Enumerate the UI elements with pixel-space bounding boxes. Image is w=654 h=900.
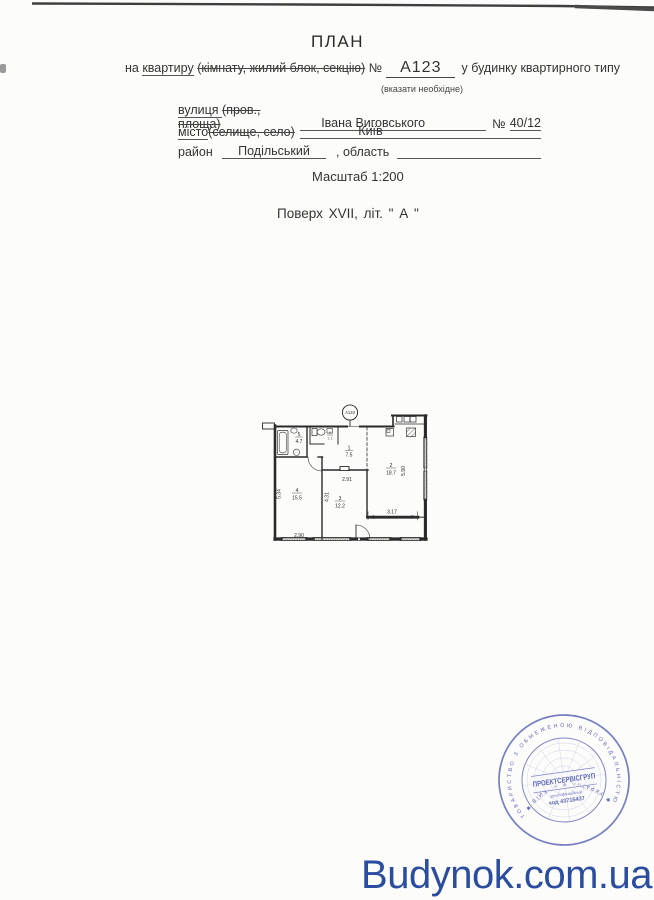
scan-artifact-edge-mark [0, 64, 6, 73]
room3-number: 3 [339, 496, 342, 502]
dim-right-horizontal: 3.17 [387, 509, 397, 515]
room1-number: 1 [348, 445, 351, 451]
room4-number: 4 [296, 488, 299, 494]
plan-subject-line: на квартиру (кімнату, жилий блок, секцію… [125, 59, 620, 78]
room5-number: 5 [298, 432, 301, 438]
dim-left: 5.34 [277, 489, 283, 499]
room6-area: 1.1 [328, 437, 333, 441]
scan-artifact-top-line [0, 0, 654, 16]
city-row: місто(селище, село) Київ [178, 124, 541, 139]
subject-suffix: у будинку квартирного типу [461, 61, 620, 75]
room2-number: 2 [390, 463, 393, 469]
subject-prefix: на [125, 61, 142, 75]
room1-area: 7.5 [346, 453, 353, 459]
room5-area: 4.7 [296, 439, 303, 445]
watermark: Budynok.com.ua [361, 853, 652, 898]
district-row: район Подільський , область [178, 143, 541, 159]
room2-area: 18.7 [386, 470, 396, 476]
city-label: місто(селище, село) [178, 125, 300, 139]
number-sign: № [369, 61, 382, 75]
dim-mid-horizontal: 2.91 [342, 477, 352, 483]
unit-badge-label: А123 [345, 410, 355, 415]
subject-object: квартиру [142, 61, 193, 76]
apartment-number: А123 [386, 59, 455, 78]
note-specify: (вказати необхідне) [381, 84, 463, 94]
dim-mid-vertical: 4.31 [325, 492, 331, 502]
room4-area: 15.5 [292, 495, 302, 501]
city-value: Київ [300, 124, 541, 139]
room3-area: 12.2 [335, 503, 345, 509]
company-stamp: ТОВАРИСТВО З ОБМЕЖЕНОЮ ВІДПОВІДАЛЬНІСТЮ … [494, 710, 634, 855]
district-value: Подільський [222, 144, 326, 159]
floor-letter-text: Поверх XVII, літ. " А " [277, 206, 419, 221]
oblast-label: , область [336, 145, 389, 159]
oblast-value [397, 143, 541, 159]
scale-text: Масштаб 1:200 [312, 169, 404, 184]
dim-bottom-left: 2.90 [294, 533, 304, 539]
dim-right-vertical: 5.90 [401, 466, 407, 476]
subject-struck-options: (кімнату, жилий блок, секцію) [197, 61, 365, 75]
scanned-plan-document: ПЛАН на квартиру (кімнату, жилий блок, с… [0, 0, 654, 900]
page-title: ПЛАН [311, 32, 364, 52]
district-label: район [178, 145, 222, 159]
room6-number: 6 [329, 431, 331, 435]
floor-plan-drawing: А123 1 7.5 2 18.7 3 12.2 4 15.5 5 4.7 6 … [250, 392, 440, 552]
